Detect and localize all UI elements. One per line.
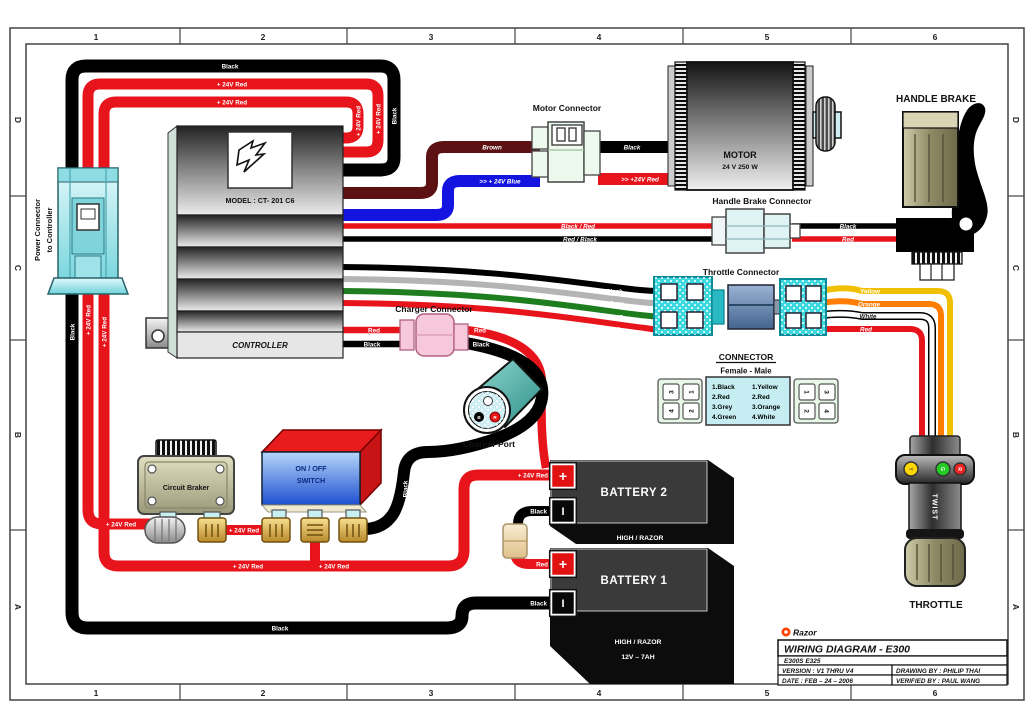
power-switch: ON / OFF SWITCH	[262, 430, 381, 542]
battery1-plus-sign: +	[559, 556, 567, 572]
brand-name: Razor	[793, 628, 817, 638]
legend-entry: 1.Yellow	[752, 384, 779, 391]
wire-label: Orange	[858, 302, 881, 309]
motor-connector-label: Motor Connector	[533, 103, 602, 113]
grid-col-label: 3	[429, 32, 434, 42]
wire-label: Black	[222, 64, 239, 71]
charger-connector: Charger Connector	[395, 304, 473, 356]
wire-label: Red	[607, 327, 619, 334]
grid-col-label: 1	[94, 32, 99, 42]
brake-lever-pivot	[960, 218, 973, 231]
throttle: Y G R TWIST THROTTLE	[896, 436, 974, 611]
title-block-version: VERSION : V1 THRU V4	[782, 668, 854, 675]
controller-mount-hole	[152, 330, 164, 342]
battery-2: BATTERY 2 HIGH / RAZOR	[550, 460, 734, 544]
wire-label: Black / Red	[561, 223, 595, 230]
handle-brake-label: HANDLE BRAKE	[896, 94, 976, 105]
wire-label: Black	[272, 626, 289, 633]
title-block-date: DATE : FEB – 24 – 2006	[782, 678, 853, 685]
wire-label: + 24V Red	[217, 82, 247, 89]
power-connector-label-line2: to Controller	[45, 207, 54, 252]
grid-col-label: 3	[429, 688, 434, 698]
throttle-connector-male	[728, 285, 774, 329]
switch-label-line2: SWITCH	[297, 476, 325, 485]
battery2-caption: HIGH / RAZOR	[617, 535, 664, 542]
grid-row-label: B	[13, 432, 23, 438]
grid-col-label: 4	[597, 32, 602, 42]
handle-brake-connector-label: Handle Brake Connector	[712, 196, 812, 206]
legend-pin: 1	[803, 390, 810, 394]
throttle-led-r-label: R	[956, 467, 962, 471]
throttle-connector: Throttle Connector	[654, 267, 826, 335]
legend-entry: 1.Black	[712, 384, 735, 391]
charger-connector-label: Charger Connector	[395, 304, 473, 314]
grid-col-label: 4	[597, 688, 602, 698]
handle-brake-connector: Handle Brake Connector	[712, 196, 812, 253]
charger-port-label: Charger Port	[463, 439, 515, 449]
wire-label: Black	[391, 107, 398, 124]
legend-entry: 4.White	[752, 414, 775, 421]
wire-label: Black	[530, 600, 547, 607]
grid-col-label: 2	[261, 688, 266, 698]
battery-1: BATTERY 1 HIGH / RAZOR 12V – 7AH	[550, 548, 734, 684]
wire-label: Black	[624, 144, 641, 151]
wire-label: Black	[606, 289, 623, 296]
grid-row-label: B	[1011, 432, 1021, 438]
wire-label: + 24V Red	[518, 472, 548, 479]
title-block-models: E300S E325	[784, 658, 821, 665]
controller-model: MODEL : CT- 201 C6	[226, 196, 295, 205]
legend-title: CONNECTOR	[719, 352, 774, 362]
wire-label: Black	[69, 323, 76, 340]
circuit-breaker-label: Circuit Braker	[163, 485, 210, 492]
wire-label: Yellow	[860, 289, 881, 296]
legend-pin: 4	[668, 409, 675, 413]
brake-connector-pins	[920, 264, 954, 280]
brake-connector-ribs	[912, 252, 962, 264]
grid-row-label: A	[13, 604, 23, 610]
title-block-drawing-by: DRAWING BY : PHILIP THAI	[896, 668, 980, 675]
wire-label: White	[859, 314, 877, 321]
wire-label: Black	[473, 341, 490, 348]
legend-pin: 4	[823, 409, 830, 413]
breaker-reset-button	[156, 440, 216, 457]
motor-spec: 24 V 250 W	[722, 164, 758, 171]
battery2-name: BATTERY 2	[601, 487, 668, 499]
wire-label: Red	[860, 327, 872, 334]
throttle-grip	[905, 538, 965, 586]
legend-pin: 2	[688, 409, 695, 413]
grid-row-label: D	[1011, 117, 1021, 123]
legend-entry: 2.Red	[712, 394, 730, 401]
legend-entry: 4.Green	[712, 414, 736, 421]
title-block-title: WIRING DIAGRAM - E300	[784, 644, 910, 656]
legend-pin: 1	[688, 390, 695, 394]
wire-label: Red	[842, 236, 854, 243]
title-block-verified-by: VERIFIED BY : PAUL WANG	[896, 678, 980, 685]
wire-label: Brown	[482, 144, 502, 151]
wire-label: Grey	[609, 301, 624, 308]
grid-row-label: D	[13, 117, 23, 123]
legend-subtitle: Female - Male	[720, 367, 772, 376]
switch-label-line1: ON / OFF	[295, 464, 327, 473]
wire-label: >> + 24V Blue	[479, 178, 521, 185]
grid-col-label: 1	[94, 688, 99, 698]
grid-col-label: 5	[765, 688, 770, 698]
grid-col-label: 2	[261, 32, 266, 42]
throttle-connector-label: Throttle Connector	[703, 267, 780, 277]
wiring-diagram-canvas: 1 2 3 4 5 6 1 2 3 4 5 6 D C B A D C B A	[0, 0, 1034, 727]
battery1-caption2: 12V – 7AH	[621, 654, 654, 661]
grid-row-label: C	[1011, 265, 1021, 271]
wire-label: Black	[530, 508, 547, 515]
battery2-minus-sign: I	[561, 506, 564, 518]
motor: MOTOR 24 V 250 W	[668, 62, 841, 190]
battery1-minus-sign: I	[561, 598, 564, 610]
controller: MODEL : CT- 201 C6 CONTROLLER	[146, 126, 343, 358]
legend-pin: 2	[803, 409, 810, 413]
wire-label: + 24V Red	[106, 522, 136, 529]
circuit-breaker: Circuit Braker	[138, 440, 234, 543]
wire-label: + 24V Red	[101, 317, 108, 347]
legend-pin: 3	[823, 390, 830, 394]
power-connector-label-line1: Power Connector	[33, 199, 42, 261]
grid-col-label: 6	[933, 32, 938, 42]
title-block: Razor WIRING DIAGRAM - E300 E300S E325 V…	[778, 628, 1007, 686]
throttle-twist-label: TWIST	[931, 494, 938, 521]
breaker-terminal-left	[145, 517, 185, 543]
throttle-label: THROTTLE	[909, 600, 963, 611]
wire-label: >> +24V Red	[621, 176, 659, 183]
grid-row-label: C	[13, 265, 23, 271]
wire-label: + 24V Red	[217, 100, 247, 107]
legend-pin: 3	[668, 390, 675, 394]
wire-label: Red	[474, 327, 486, 334]
wiring-diagram-page: 1 2 3 4 5 6 1 2 3 4 5 6 D C B A D C B A	[0, 0, 1034, 727]
grid-col-label: 6	[933, 688, 938, 698]
wire-label: Red	[536, 561, 548, 568]
battery1-name: BATTERY 1	[601, 575, 668, 587]
throttle-led-g-label: G	[939, 467, 945, 471]
wire-label: Black	[364, 341, 381, 348]
wire-label: Red / Black	[563, 236, 597, 243]
wire-label: + 24V Red	[355, 106, 362, 136]
legend-entry: 3.Orange	[752, 404, 781, 411]
controller-name: CONTROLLER	[232, 341, 288, 350]
grid-col-label: 5	[765, 32, 770, 42]
wire-label: Green	[605, 314, 623, 321]
wire-label: Black	[840, 223, 857, 230]
motor-connector: Motor Connector	[532, 103, 602, 182]
legend-entry: 2.Red	[752, 394, 770, 401]
power-connector: Power Connector to Controller	[33, 168, 128, 294]
motor-gear	[816, 97, 835, 151]
wire-label: + 24V Red	[233, 564, 263, 571]
legend-entry: 3.Grey	[712, 404, 733, 411]
grid-row-label: A	[1011, 604, 1021, 610]
wire-label: + 24V Red	[229, 528, 259, 535]
wire-label: + 24V Red	[85, 305, 92, 335]
wire-label: + 24V Red	[375, 104, 382, 134]
motor-name: MOTOR	[723, 150, 757, 160]
connector-legend: CONNECTOR Female - Male 3 1 4 2 1.Black …	[658, 352, 838, 425]
battery1-caption1: HIGH / RAZOR	[615, 639, 662, 646]
wire-label: Red	[368, 327, 380, 334]
wire-label: + 24V Red	[319, 564, 349, 571]
handle-brake: HANDLE BRAKE	[896, 94, 988, 280]
wire-label: Black	[402, 480, 409, 497]
battery2-plus-sign: +	[559, 468, 567, 484]
